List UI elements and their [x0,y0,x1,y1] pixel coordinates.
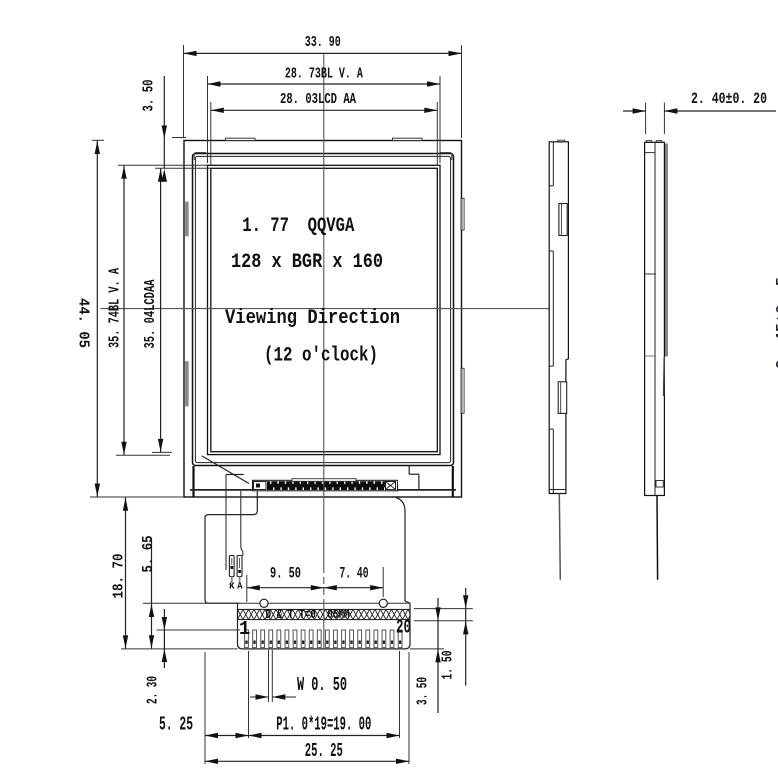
svg-text:D & T T=0. 05MM: D & T T=0. 05MM [266,608,350,622]
svg-text:3. 50: 3. 50 [415,677,432,705]
svg-text:128 x BGR x 160: 128 x BGR x 160 [231,251,383,274]
svg-text:35. 74BL V. A: 35. 74BL V. A [107,268,124,348]
svg-text:2. 30: 2. 30 [145,676,162,704]
svg-text:5. 65: 5. 65 [140,536,157,573]
svg-text:33. 90: 33. 90 [305,34,341,51]
svg-text:3. 50: 3. 50 [141,80,158,112]
svg-text:A: A [237,582,243,592]
svg-text:1: 1 [239,618,250,640]
svg-text:(12 o'clock): (12 o'clock) [264,345,378,368]
svg-text:W 0. 50: W 0. 50 [297,674,347,696]
svg-text:7. 40: 7. 40 [340,565,369,583]
svg-text:P1. 0*19=19. 00: P1. 0*19=19. 00 [276,714,371,736]
svg-text:18. 70: 18. 70 [111,554,128,599]
svg-text:2. 45±0. 5: 2. 45±0. 5 [774,277,778,369]
svg-text:1. 50: 1. 50 [440,651,457,680]
svg-text:2. 40±0. 20: 2. 40±0. 20 [691,90,767,108]
svg-text:44. 05: 44. 05 [75,298,92,348]
svg-text:9. 50: 9. 50 [270,565,301,583]
svg-text:5. 25: 5. 25 [159,714,193,736]
svg-text:Viewing Direction: Viewing Direction [225,307,400,330]
svg-text:20: 20 [396,617,411,639]
svg-text:K: K [229,582,235,592]
svg-text:25. 25: 25. 25 [305,740,343,762]
svg-text:28. 03LCD AA: 28. 03LCD AA [280,91,356,108]
svg-text:28. 73BL V. A: 28. 73BL V. A [285,66,363,83]
svg-text:35. 04LCDAA: 35. 04LCDAA [142,280,159,349]
svg-text:1. 77 QQVGA: 1. 77 QQVGA [242,215,354,238]
